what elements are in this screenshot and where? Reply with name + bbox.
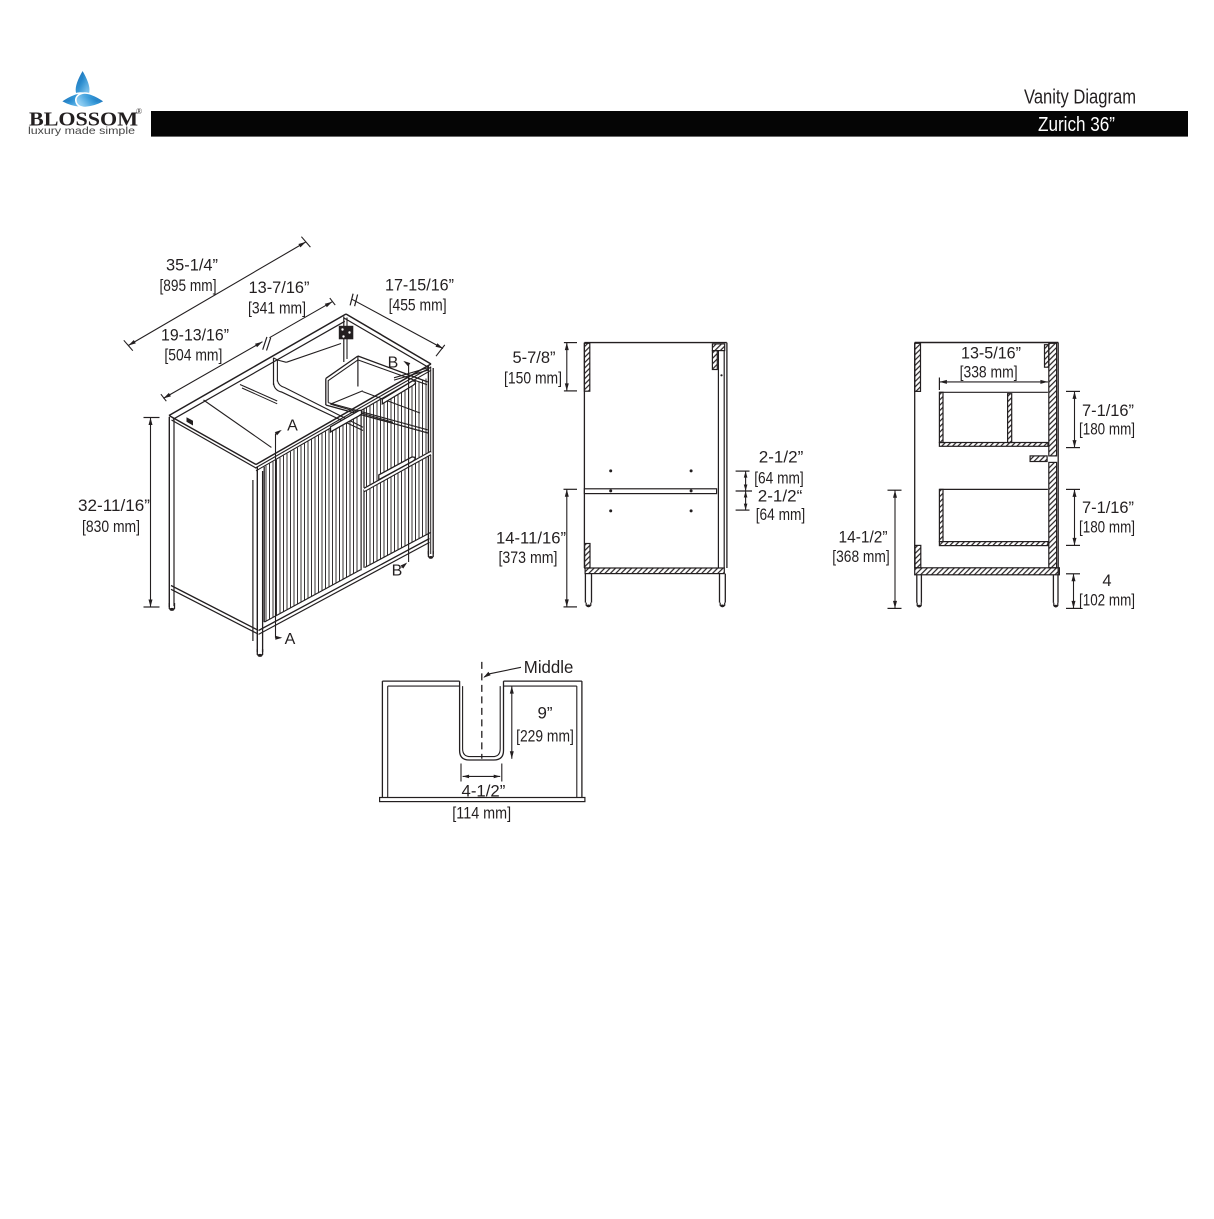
svg-text:[338 mm]: [338 mm] <box>960 364 1018 382</box>
svg-text:35-1/4”: 35-1/4” <box>166 257 218 275</box>
svg-text:[504 mm]: [504 mm] <box>164 347 222 365</box>
svg-text:2-1/2“: 2-1/2“ <box>758 487 803 505</box>
svg-text:[368 mm]: [368 mm] <box>832 548 889 566</box>
svg-text:Zurich 36”: Zurich 36” <box>1038 114 1115 136</box>
svg-text:4: 4 <box>1102 572 1111 590</box>
svg-text:[895 mm]: [895 mm] <box>160 277 217 295</box>
svg-text:32-11/16”: 32-11/16” <box>78 497 150 515</box>
svg-text:Middle: Middle <box>524 657 574 677</box>
svg-text:7-1/16”: 7-1/16” <box>1082 402 1134 420</box>
svg-text:[150 mm]: [150 mm] <box>504 370 562 388</box>
svg-text:Vanity Diagram: Vanity Diagram <box>1024 86 1136 109</box>
svg-text:[64 mm]: [64 mm] <box>754 470 804 488</box>
svg-text:7-1/16”: 7-1/16” <box>1082 499 1134 517</box>
svg-text:®: ® <box>136 107 142 116</box>
svg-text:B: B <box>388 354 399 371</box>
svg-text:A: A <box>285 631 296 648</box>
svg-text:13-5/16”: 13-5/16” <box>961 345 1021 363</box>
svg-text:[373 mm]: [373 mm] <box>499 549 558 567</box>
svg-text:9”: 9” <box>538 704 553 722</box>
svg-text:B: B <box>392 562 403 579</box>
svg-text:luxury made simple: luxury made simple <box>28 125 135 137</box>
svg-text:13-7/16”: 13-7/16” <box>249 279 310 297</box>
svg-text:[64 mm]: [64 mm] <box>756 506 806 524</box>
svg-text:[114 mm]: [114 mm] <box>452 805 511 823</box>
svg-text:4-1/2”: 4-1/2” <box>462 783 506 801</box>
svg-text:[455 mm]: [455 mm] <box>389 297 447 315</box>
svg-text:14-1/2”: 14-1/2” <box>839 529 888 547</box>
svg-text:14-11/16”: 14-11/16” <box>496 530 566 548</box>
svg-text:[102 mm]: [102 mm] <box>1079 592 1135 610</box>
svg-text:A: A <box>287 418 298 435</box>
svg-text:17-15/16”: 17-15/16” <box>385 277 454 295</box>
svg-text:19-13/16”: 19-13/16” <box>161 327 229 345</box>
svg-text:[229 mm]: [229 mm] <box>516 727 574 745</box>
svg-text:[341 mm]: [341 mm] <box>248 300 306 318</box>
svg-text:[830 mm]: [830 mm] <box>82 518 140 536</box>
svg-text:5-7/8”: 5-7/8” <box>513 349 556 367</box>
svg-text:[180 mm]: [180 mm] <box>1079 421 1135 439</box>
svg-text:[180 mm]: [180 mm] <box>1079 519 1135 537</box>
svg-text:2-1/2”: 2-1/2” <box>759 449 804 467</box>
